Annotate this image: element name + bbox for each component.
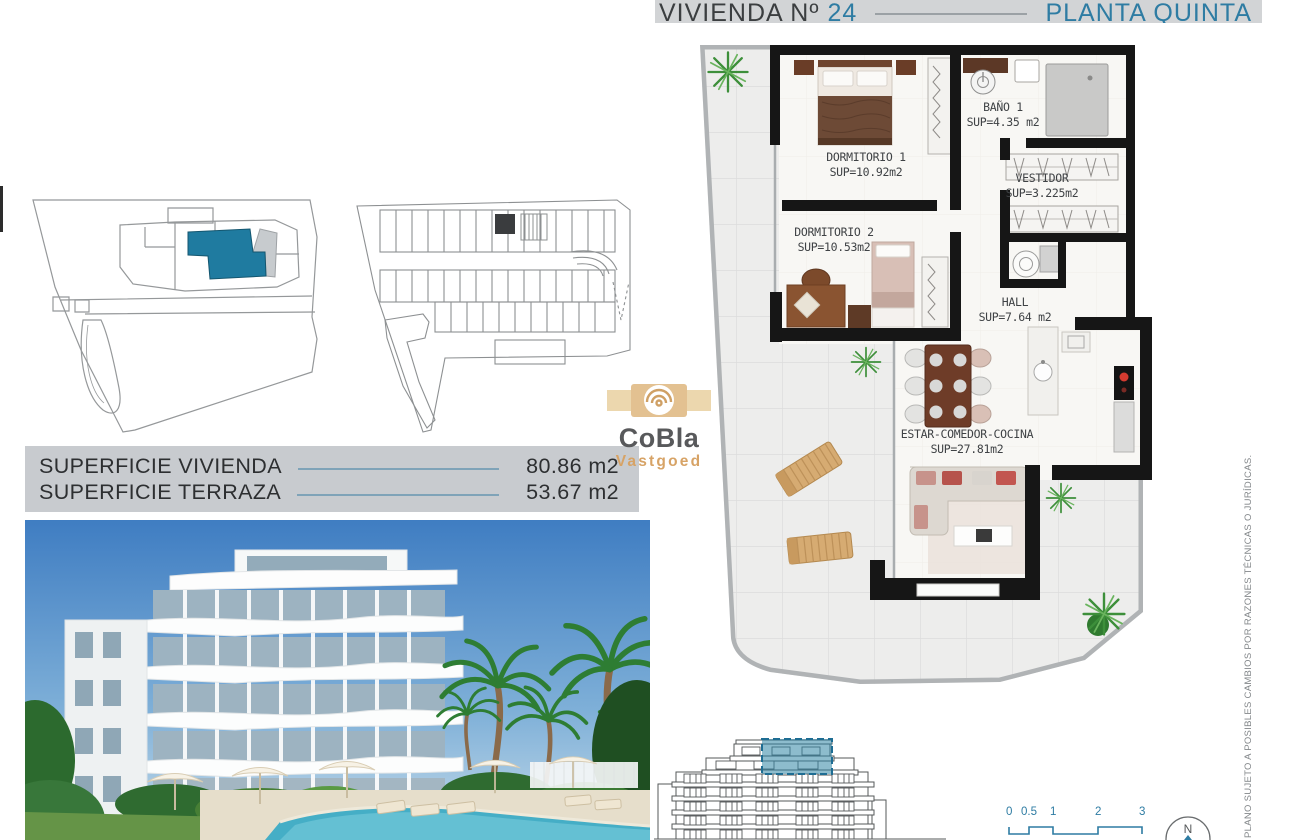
room-area: SUP=3.225m2 [981, 186, 1103, 201]
room-label-estar: ESTAR-COMEDOR-COCINA SUP=27.81m2 [871, 427, 1063, 457]
scale-tick: 0.5 [1021, 806, 1037, 818]
terrace-plant [1047, 484, 1076, 513]
left-edge-mark [0, 186, 3, 232]
scale-tick: 1 [1050, 806, 1056, 818]
wardrobe-dormitorio2 [922, 257, 948, 327]
dining-table [905, 345, 991, 427]
unit-highlight [762, 739, 832, 774]
room-name: HALL [954, 295, 1076, 310]
scale-bar: 0 0.5 1 2 3 [1005, 806, 1155, 840]
stair-core [521, 214, 547, 240]
room-name: BAÑO 1 [943, 100, 1063, 115]
room-label-vestidor: VESTIDOR SUP=3.225m2 [981, 171, 1103, 201]
room-name: DORMITORIO 1 [794, 150, 938, 165]
plan-sheet: VIVIENDA Nº 24 PLANTA QUINTA [0, 0, 1290, 840]
disclaimer-text: PLANO SUJETO A POSIBLES CAMBIOS POR RAZO… [1243, 530, 1259, 838]
plan-header: VIVIENDA Nº 24 PLANTA QUINTA [655, 0, 1262, 23]
surface-label: SUPERFICIE VIVIENDA [39, 454, 282, 479]
building-elevation [650, 726, 950, 840]
room-area: SUP=7.64 m2 [954, 310, 1076, 325]
header-divider-line [875, 13, 1027, 15]
building-photo [25, 520, 650, 840]
room-name: DORMITORIO 2 [762, 225, 906, 240]
surface-leader-line [298, 468, 499, 470]
site-plan-location-map [25, 192, 335, 438]
surface-value: 53.67 m2 [515, 480, 619, 505]
unit-title: VIVIENDA Nº [659, 0, 819, 23]
room-label-dormitorio1: DORMITORIO 1 SUP=10.92m2 [794, 150, 938, 180]
room-area: SUP=10.53m2 [762, 240, 906, 255]
room-label-bano1: BAÑO 1 SUP=4.35 m2 [943, 100, 1063, 130]
terrace-plant [708, 52, 747, 91]
surface-leader-line [297, 494, 499, 496]
tv-sideboard [917, 584, 999, 596]
room-area: SUP=4.35 m2 [943, 115, 1063, 130]
scale-tick: 0 [1006, 806, 1012, 818]
surface-table: SUPERFICIE VIVIENDA 80.86 m2 SUPERFICIE … [25, 446, 639, 512]
scale-bar-rule [1005, 822, 1155, 838]
surface-row: SUPERFICIE TERRAZA 53.67 m2 [39, 480, 619, 505]
north-label: N [1184, 822, 1193, 836]
surface-label: SUPERFICIE TERRAZA [39, 480, 281, 505]
highlighted-unit-footprint [188, 229, 266, 279]
north-arrow: N [1158, 812, 1222, 840]
terrace-plant [852, 348, 881, 377]
coffee-table [954, 526, 1012, 546]
room-label-hall: HALL SUP=7.64 m2 [954, 295, 1076, 325]
floor-title: PLANTA QUINTA [1045, 0, 1252, 23]
scale-tick: 2 [1095, 806, 1101, 818]
scale-tick: 3 [1139, 806, 1145, 818]
room-area: SUP=10.92m2 [794, 165, 938, 180]
elevator-core [495, 214, 515, 234]
room-name: VESTIDOR [981, 171, 1103, 186]
room-name: ESTAR-COMEDOR-COCINA [871, 427, 1063, 442]
room-label-dormitorio2: DORMITORIO 2 SUP=10.53m2 [762, 225, 906, 255]
room-area: SUP=27.81m2 [871, 442, 1063, 457]
floor-plan-drawing [690, 40, 1160, 690]
unit-number: 24 [827, 0, 857, 23]
surface-row: SUPERFICIE VIVIENDA 80.86 m2 [39, 454, 619, 479]
